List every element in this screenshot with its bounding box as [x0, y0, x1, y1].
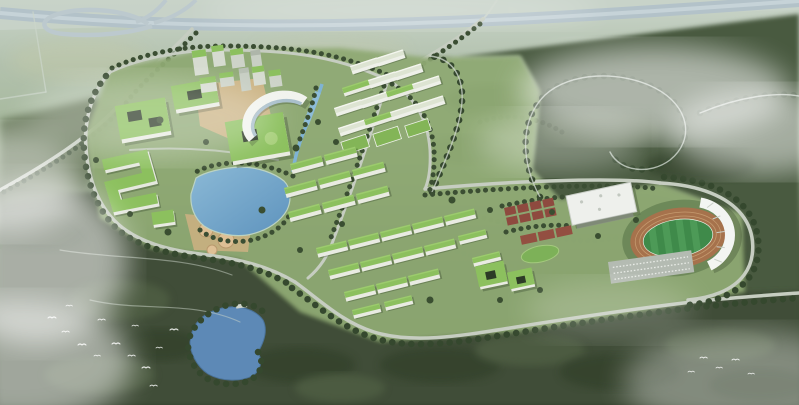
mist-wisp: [525, 280, 695, 340]
campus-masterplan-scene: [0, 0, 799, 405]
annex-building: [151, 209, 177, 230]
s-shaped-building: [103, 156, 160, 210]
aerial-rendering: [0, 0, 799, 405]
mist-haze: [25, 76, 275, 160]
mist-wisp: [478, 112, 642, 172]
